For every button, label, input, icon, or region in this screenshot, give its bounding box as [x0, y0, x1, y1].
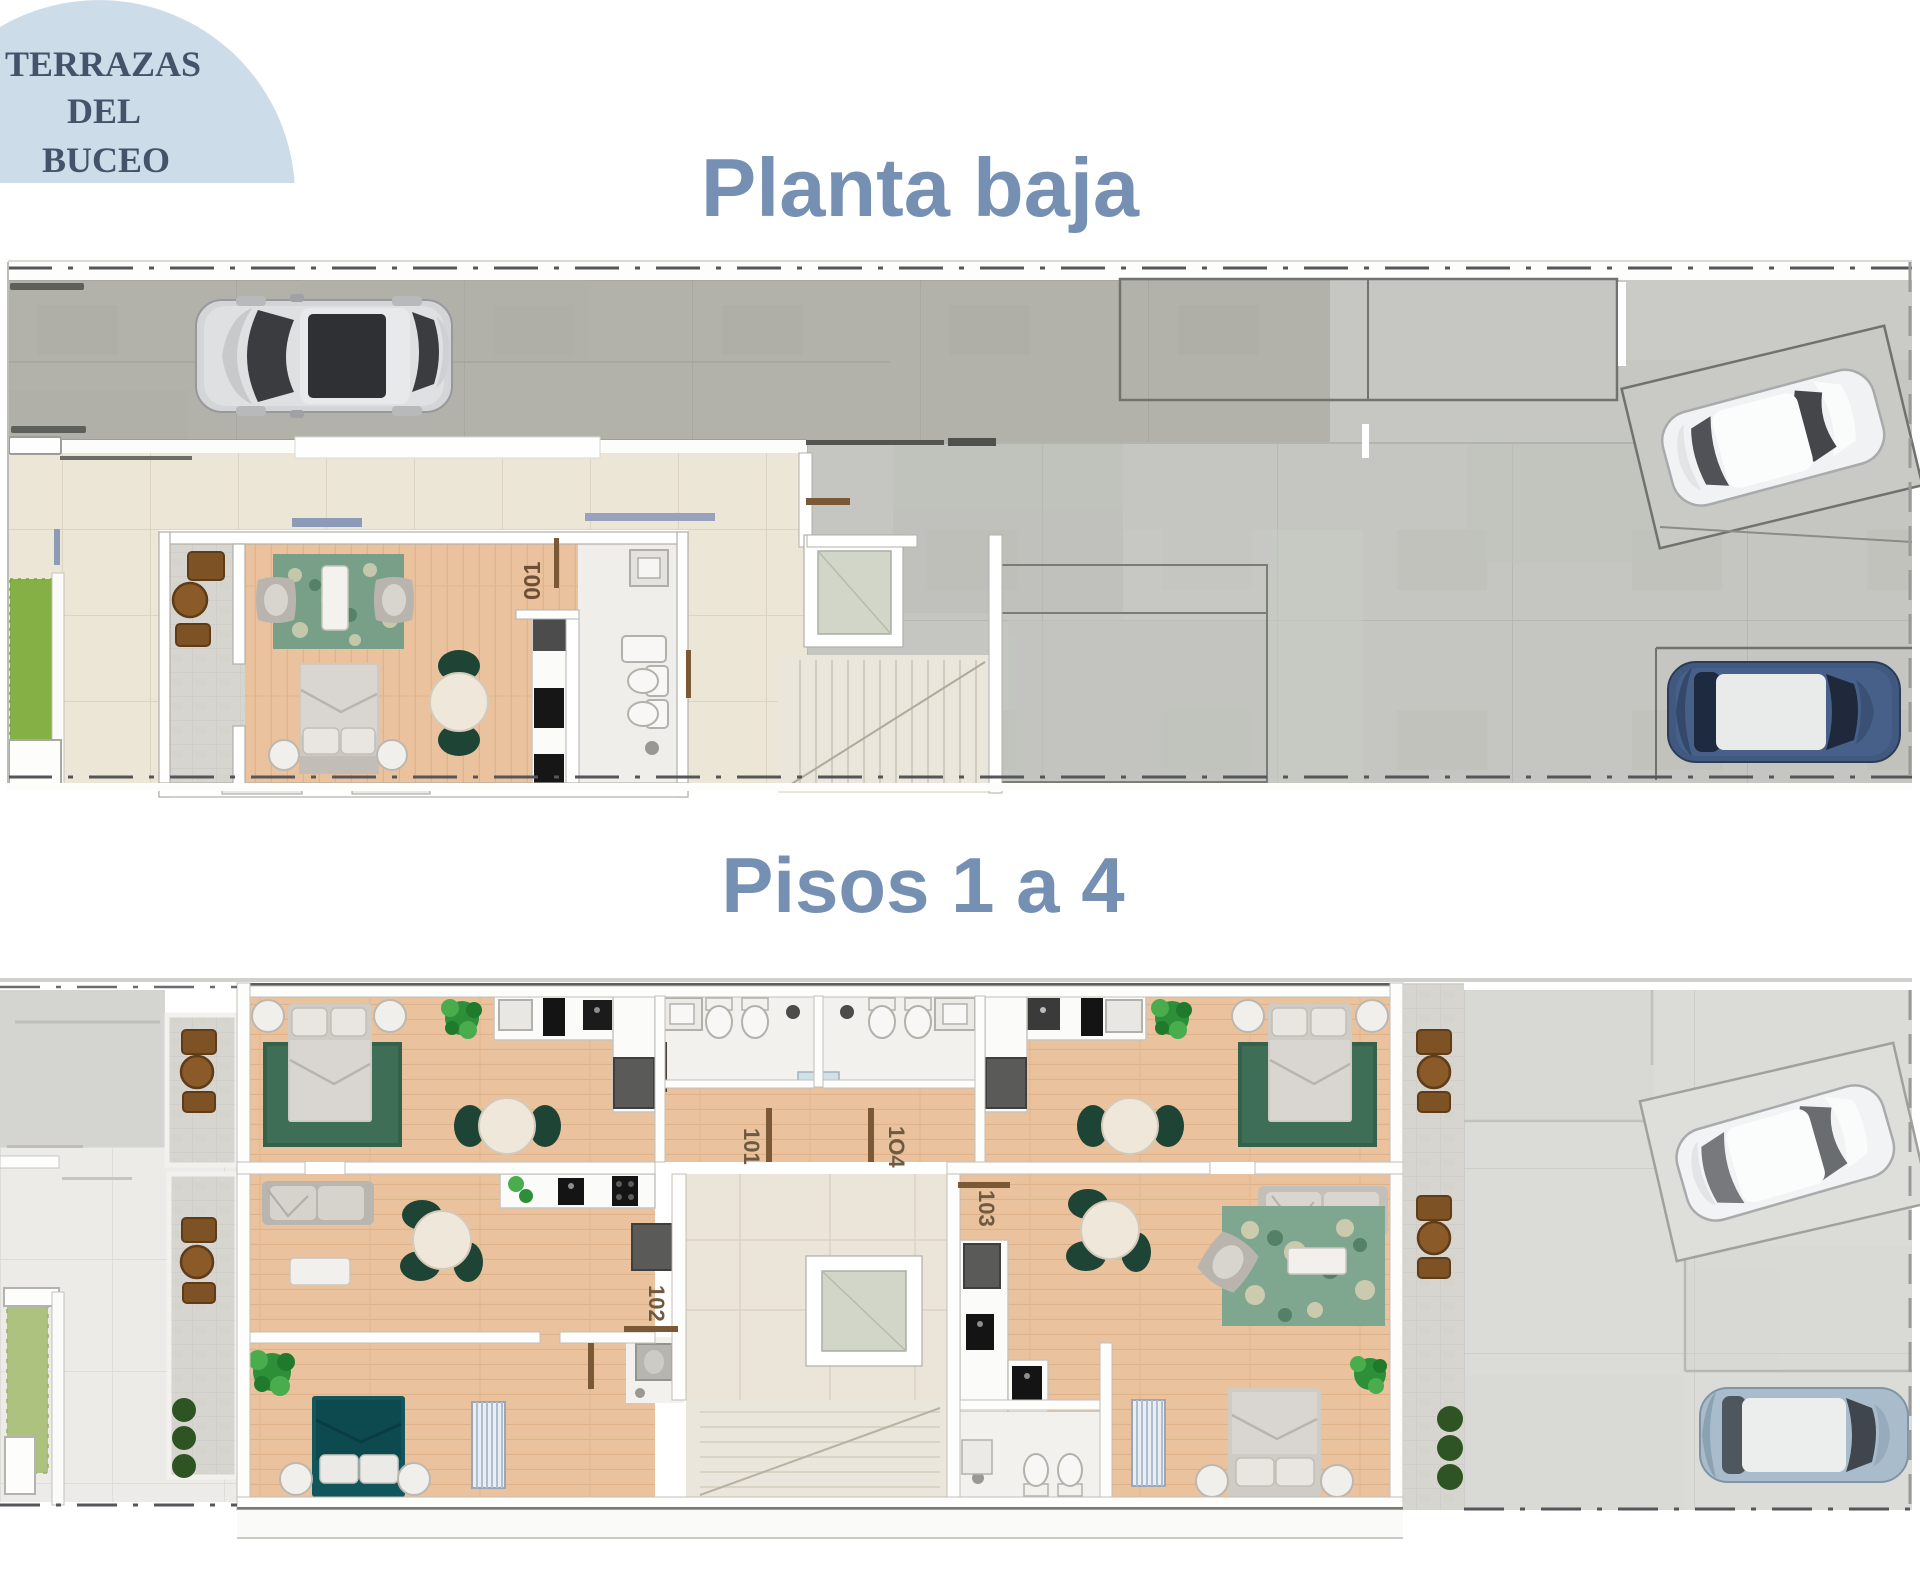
svg-text:TERRAZAS: TERRAZAS — [5, 44, 201, 84]
svg-text:Pisos 1 a 4: Pisos 1 a 4 — [721, 841, 1124, 929]
svg-text:Planta baja: Planta baja — [701, 141, 1140, 234]
svg-text:1O4: 1O4 — [884, 1126, 909, 1168]
svg-text:BUCEO: BUCEO — [42, 140, 170, 180]
svg-text:DEL: DEL — [67, 91, 141, 131]
svg-text:001: 001 — [519, 561, 545, 600]
svg-text:101: 101 — [739, 1128, 764, 1165]
svg-text:102: 102 — [644, 1285, 669, 1322]
svg-text:103: 103 — [974, 1190, 999, 1227]
